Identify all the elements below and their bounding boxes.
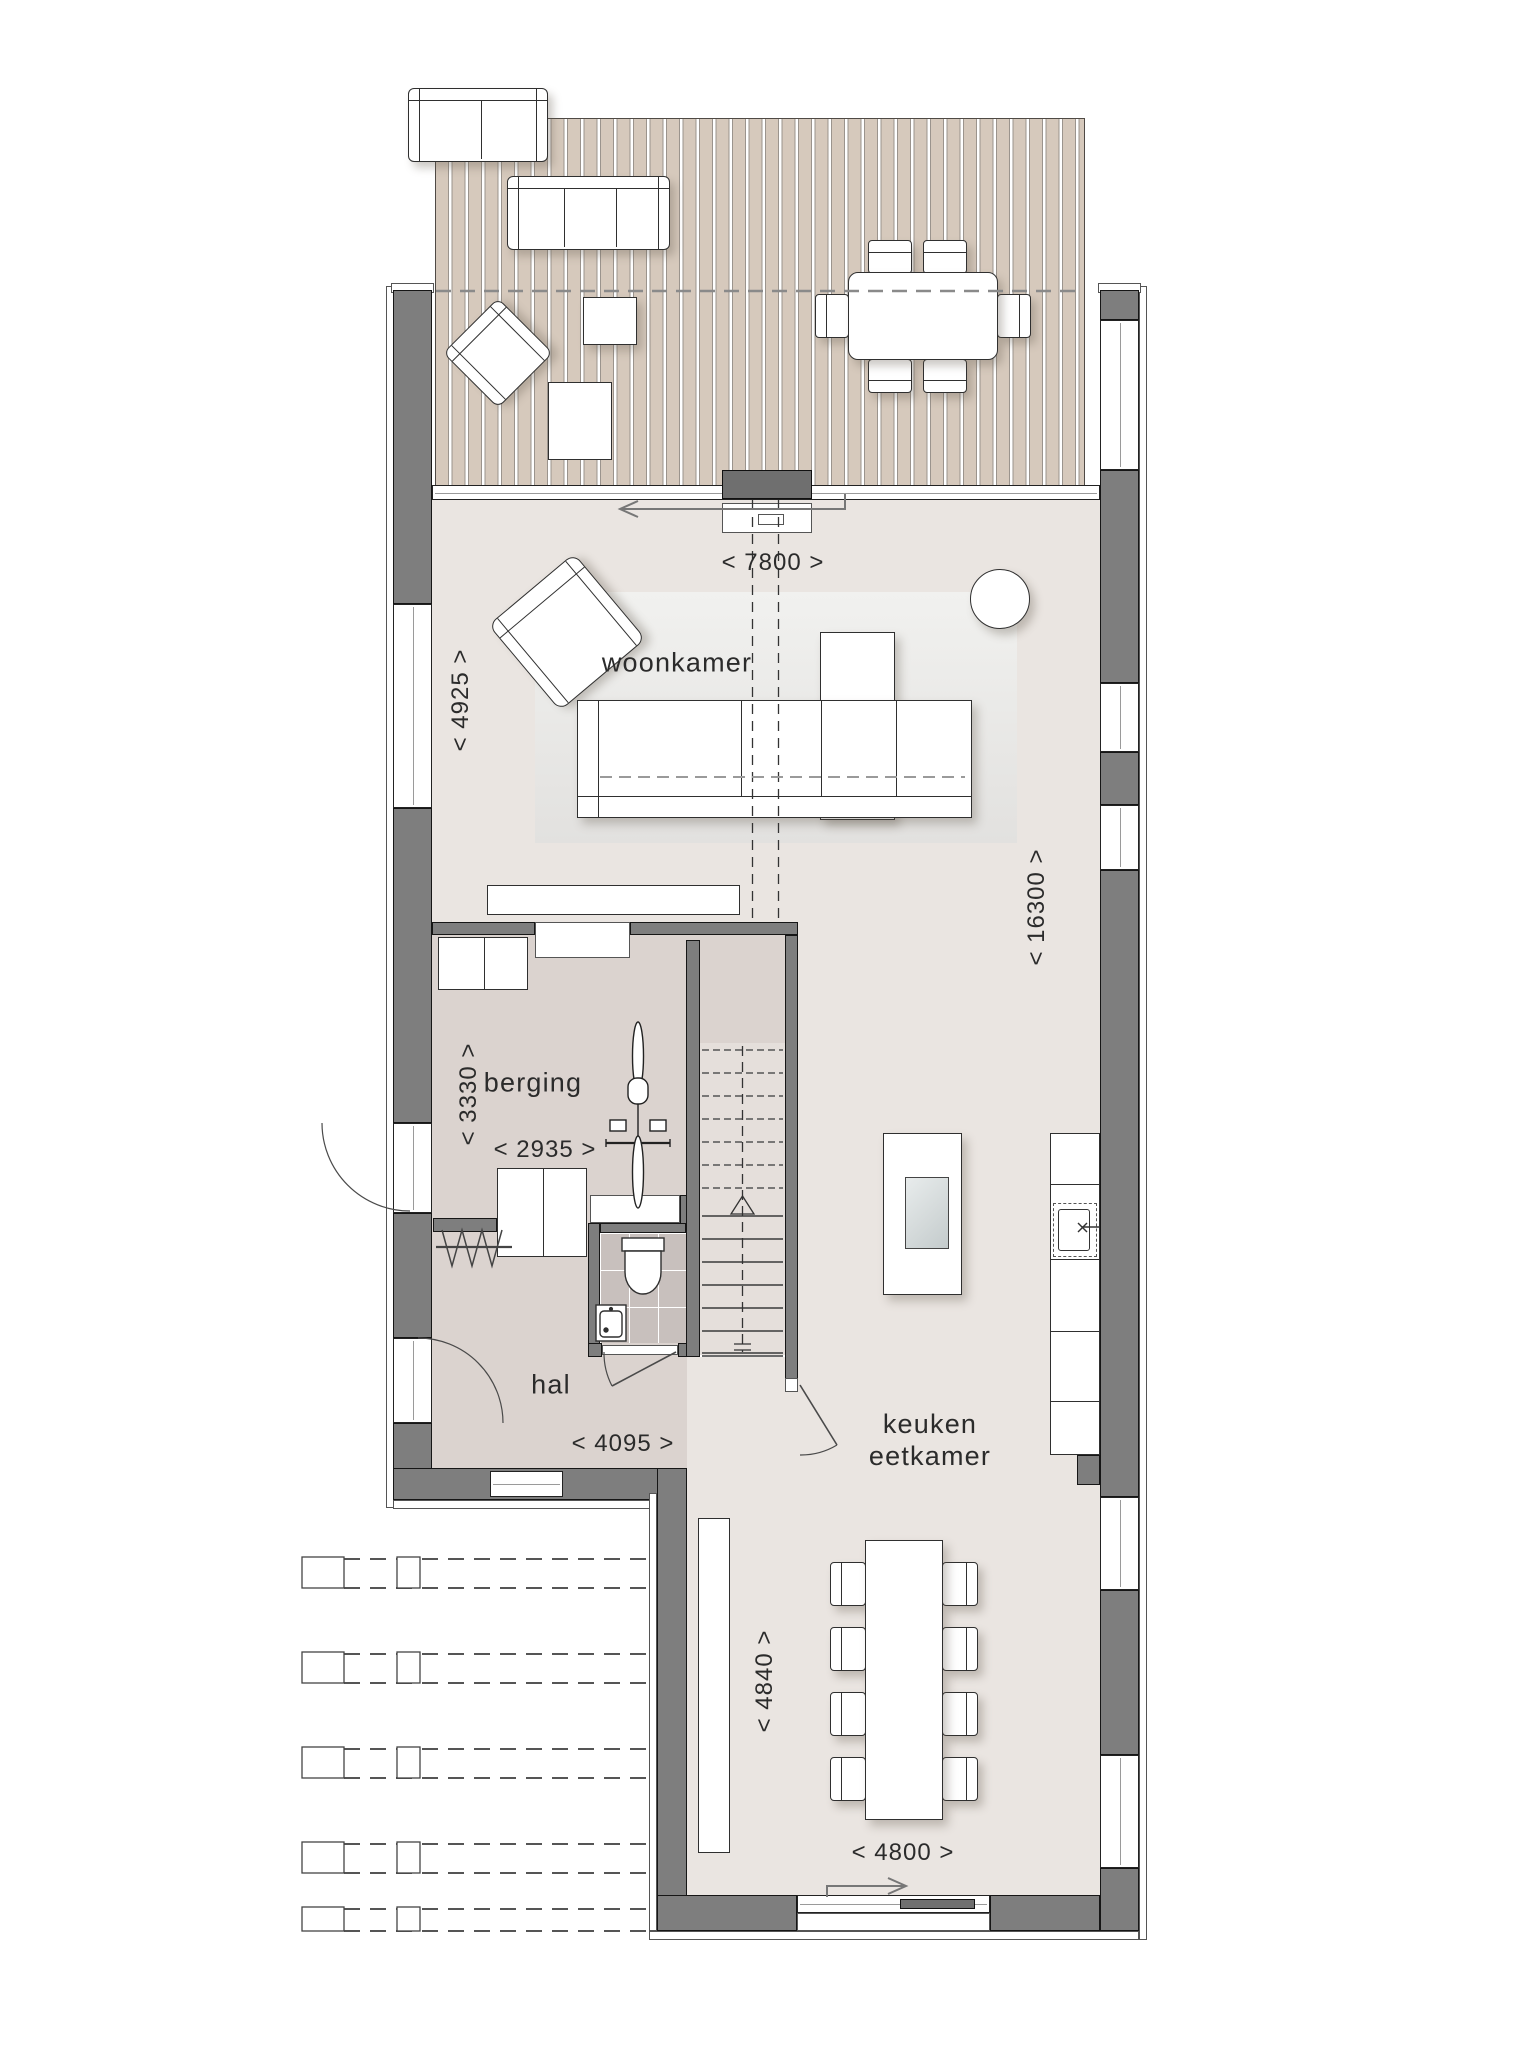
sofa-main [577,700,972,818]
outdoor-dining-chair [923,240,967,274]
wall-toilet-left [588,1223,600,1357]
wall-toilet-bottom-l [588,1343,602,1357]
window-woonkamer-right-1 [1100,683,1139,752]
pouf [970,569,1030,629]
dimension-4800: < 4800 > [852,1839,955,1867]
window-terrace-right [1100,320,1139,470]
wall-toilet-top [600,1223,686,1233]
chair-backrest [966,1693,977,1735]
counter-divider [1051,1331,1099,1332]
outdoor-dining-chair [815,294,849,338]
floor-stairs [700,1043,785,1355]
cabinet-divider [484,938,485,989]
stairs-door-jamb [785,1378,798,1392]
dining-chair [830,1627,866,1671]
dining-chair [830,1562,866,1606]
chair-backrest [966,1563,977,1605]
sofa-backrest [409,89,547,101]
dining-table [865,1540,943,1820]
dining-chair [942,1692,978,1736]
carport-beams [344,1559,657,1931]
counter-divider [1051,1259,1099,1260]
sofa-armrest-line [598,701,599,817]
room-label-woonkamer: woonkamer [602,648,752,679]
wall-right-pier [1100,752,1139,805]
outdoor-sofa-large [507,176,670,250]
wall-right-eetkamer [1100,1590,1139,1755]
outdoor-side-table [583,297,637,345]
tall-cabinet [698,1518,730,1853]
dining-chair [830,1692,866,1736]
cushion-divider [616,188,617,247]
chair-backrest [831,1758,842,1800]
cabinet-divider [543,1169,544,1256]
outdoor-dining-chair [923,359,967,393]
window-woonkamer-left [393,604,432,808]
dining-chair [830,1757,866,1801]
chair-backrest [816,295,827,337]
floor-toilet [600,1233,686,1343]
cushion-divider [564,188,565,247]
wall-left-terrace [393,290,432,604]
sofa-armrest [508,177,519,249]
wall-stairs-right [785,935,798,1390]
sliding-panel [722,470,812,499]
kitchen-island [883,1133,962,1295]
chair-backrest [966,1628,977,1670]
window-woonkamer-right-2 [1100,805,1139,870]
cooktop-icon [905,1177,949,1249]
interior-window-berging [535,922,630,958]
kitchen-sink-basin [1058,1209,1090,1251]
sofa-backrest [508,177,669,189]
outdoor-dining-chair [868,359,912,393]
berging-exterior-door [393,1123,432,1213]
carport-posts [302,1557,420,1931]
kitchen-counter [1050,1133,1100,1455]
wall-bottom-right [990,1895,1100,1931]
window-hal-bottom [490,1471,563,1497]
cushion-divider [741,701,742,796]
dining-chair [942,1627,978,1671]
wall-right-woonkamer [1100,470,1139,683]
dining-chair [942,1757,978,1801]
dimension-3330: < 3330 > [455,1043,483,1146]
window-keuken-right [1100,1497,1139,1590]
wall-berging-hal-left [433,1218,497,1232]
floor-plan: woonkamer berging hal keuken eetkamer < … [0,0,1536,2048]
wall-berging-top-right [630,922,798,935]
wall-left-mid [393,1213,432,1338]
dimension-4840: < 4840 > [751,1630,779,1733]
sliding-door-leaf [722,503,812,533]
sofa-armrest [536,89,547,161]
counter-divider [1051,1401,1099,1402]
room-label-hal: hal [531,1370,571,1401]
chair-backrest [869,380,911,392]
outdoor-dining-table [848,272,998,360]
sideboard [487,885,740,915]
chair-backrest [1019,295,1030,337]
wall-stairs-left [686,940,700,1357]
wall-right-keuken [1100,870,1139,1497]
chair-backrest [831,1693,842,1735]
outdoor-sofa-small [408,88,548,162]
chair-backrest [924,241,966,253]
chair-backrest [831,1628,842,1670]
casing-hal-bottom [393,1500,687,1509]
cabinet-berging-bottom [497,1168,587,1257]
dining-chair [942,1562,978,1606]
interior-window-toilet [590,1195,680,1223]
wall-counter-end [1077,1455,1100,1485]
window-eetkamer-right [1100,1755,1139,1868]
wall-berging-top-left [432,922,535,935]
wall-step-vertical [657,1468,687,1900]
cabinet-berging-top [438,937,528,990]
dimension-4095: < 4095 > [572,1430,675,1458]
front-door [393,1338,432,1423]
wall-casing-right [1139,286,1147,1940]
wall-right-terrace [1100,290,1139,320]
outdoor-dining-chair [868,240,912,274]
wall-left-berging [393,808,432,1123]
chair-backrest [966,1758,977,1800]
dimension-2935: < 2935 > [494,1136,597,1164]
chair-backrest [869,241,911,253]
outdoor-dining-chair [997,294,1031,338]
wall-bottom-left [657,1895,797,1931]
sofa-armrest [658,177,669,249]
room-label-keuken-line1: keuken [869,1408,991,1440]
toilet-door-sill [602,1345,678,1355]
sliding-panel-bottom [900,1899,975,1909]
door-handle [758,514,784,525]
cushion-divider [481,100,482,159]
casing-step [649,1493,657,1931]
cushion-divider [896,701,897,796]
wall-right-corner [1100,1868,1139,1931]
chair-backrest [831,1563,842,1605]
room-label-keuken-line2: eetkamer [869,1440,991,1472]
cushion-divider [821,701,822,796]
room-label-berging: berging [484,1068,582,1099]
casing-bottom [649,1931,1139,1940]
room-label-keuken: keuken eetkamer [869,1408,991,1472]
sofa-backrest-line [578,796,971,797]
sofa-armrest [409,89,420,161]
sliding-door-sill-bottom [797,1913,990,1931]
dimension-16300: < 16300 > [1023,848,1051,965]
dimension-4925: < 4925 > [447,649,475,752]
chair-backrest [924,380,966,392]
counter-divider [1051,1184,1099,1185]
dimension-7800: < 7800 > [722,549,825,577]
terrace-bench [548,382,612,460]
